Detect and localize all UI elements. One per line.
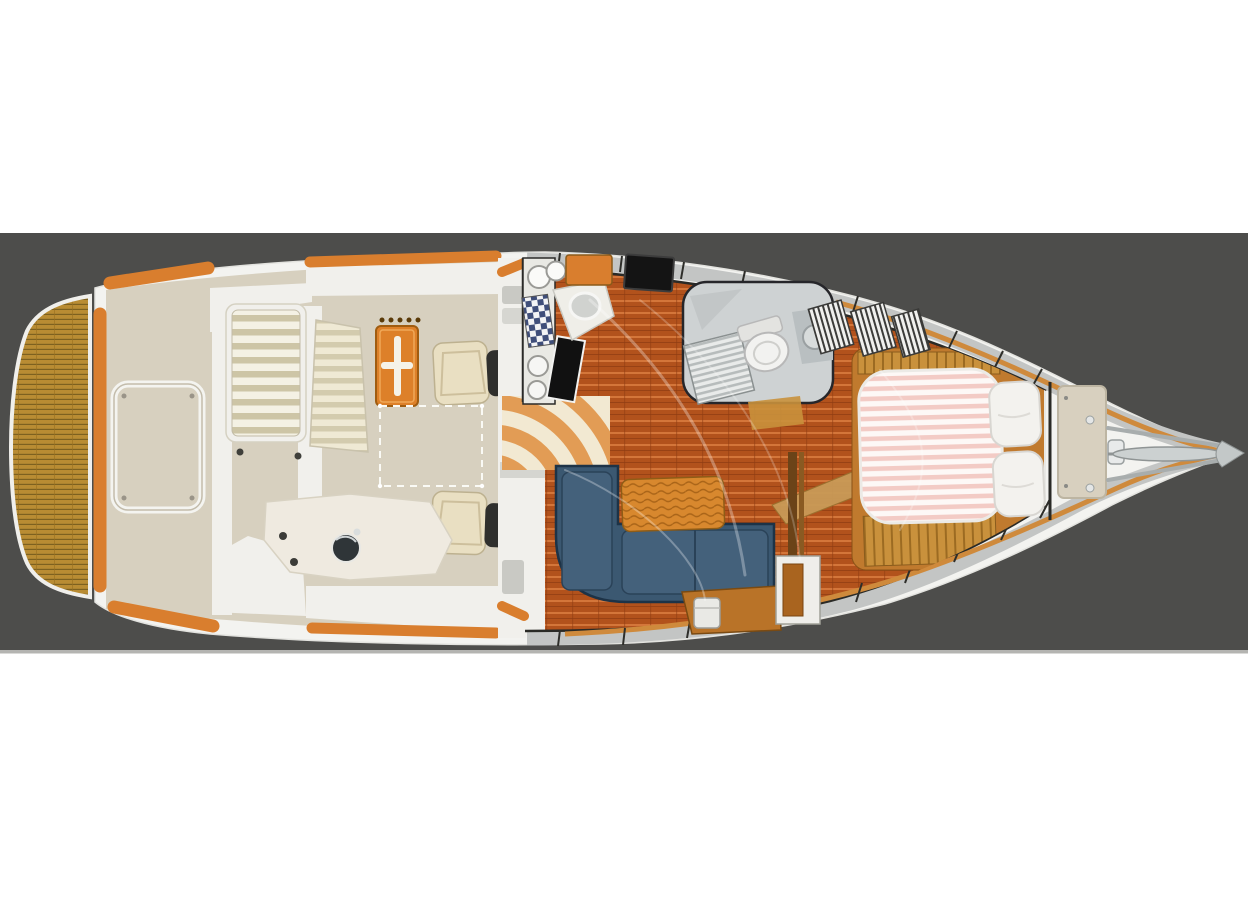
- faucet: [354, 529, 361, 536]
- swim-platform: [11, 296, 90, 597]
- wet-bar-sink: [264, 494, 452, 580]
- stove-burner: [528, 381, 546, 399]
- anchor-body: [1113, 447, 1223, 461]
- foredeck-hatch: [1058, 386, 1106, 498]
- flybridge-steps: [310, 320, 368, 452]
- cabinet-canister: [694, 598, 720, 628]
- cockpit-top-walkway: [306, 262, 500, 296]
- tv-panel: [624, 254, 674, 291]
- bolster-cushion: [621, 476, 725, 532]
- gray-band-bottom-edge: [0, 650, 1248, 654]
- transom-bench: [226, 304, 306, 460]
- floor-plan-image: [0, 0, 1248, 900]
- cockpit: [100, 256, 511, 633]
- stove-burner: [528, 356, 548, 376]
- head-compartment: [683, 282, 833, 404]
- starboard-desk: [748, 396, 804, 430]
- cockpit-table: [376, 318, 421, 407]
- bow-cleat: [1086, 416, 1094, 424]
- galley-cabinet: [566, 255, 612, 285]
- v-berth-mattress: [858, 368, 1004, 524]
- bow-cleat: [1086, 484, 1094, 492]
- galley-sink: [547, 262, 566, 281]
